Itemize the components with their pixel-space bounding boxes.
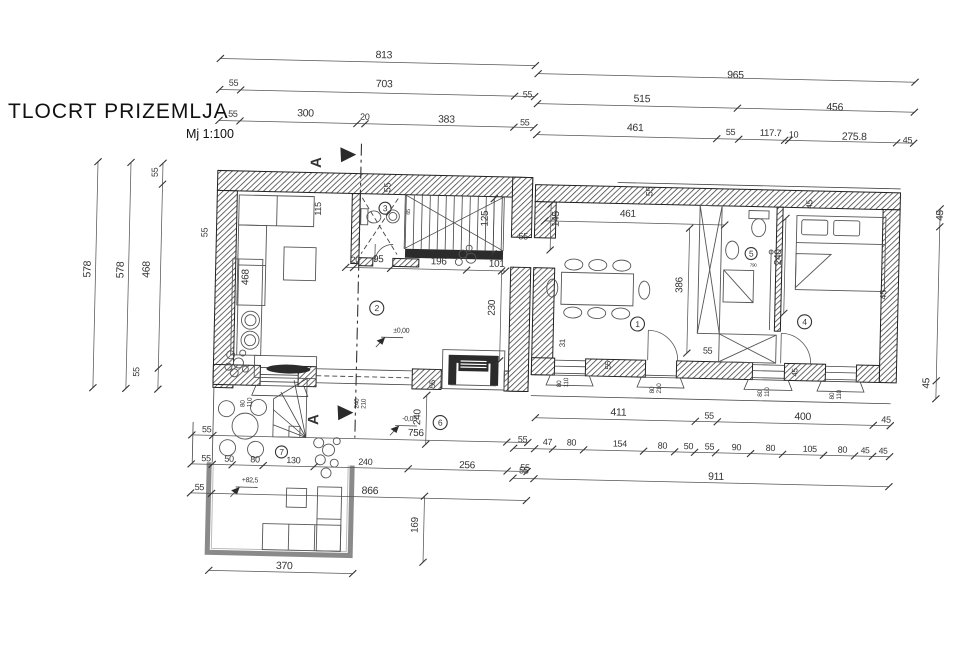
- dim-label: 90: [732, 442, 742, 452]
- dim-label: 117.7: [760, 128, 782, 139]
- bedroom-door-swing: [781, 333, 812, 364]
- dim-label: 55: [518, 231, 528, 241]
- terrace-table: [286, 488, 306, 507]
- dim-label: 813: [375, 49, 392, 61]
- dim-label: 756: [408, 428, 425, 439]
- stair-riser: [493, 197, 494, 251]
- dim-label: 154: [613, 438, 628, 448]
- dim-label: 55: [520, 117, 530, 127]
- dim-label: 578: [114, 261, 126, 278]
- entry-door-swing: [648, 330, 679, 361]
- stair-riser: [469, 196, 470, 250]
- wall-new-masonry: [697, 205, 780, 363]
- dim-label: 256: [459, 460, 476, 471]
- dim-label: 55: [428, 379, 437, 388]
- dim-line: [126, 162, 131, 388]
- dim-label: 515: [633, 93, 650, 105]
- dim-label: 45: [903, 135, 913, 145]
- dim-label: 55: [131, 367, 141, 377]
- dim-label: 101: [489, 259, 506, 270]
- living-room-furniture: [230, 195, 320, 379]
- dim-label: 80: [250, 454, 260, 464]
- dim-label: 383: [438, 113, 455, 125]
- dim-label: 461: [627, 122, 644, 134]
- dim-label: 31: [558, 338, 567, 347]
- dim-label: 45: [804, 199, 814, 209]
- dim-label: 55: [603, 360, 612, 369]
- drawing-scale: Mj 1:100: [186, 127, 234, 141]
- dim-label: 55: [703, 345, 713, 355]
- dim-label: 45: [881, 415, 891, 425]
- dim-label: 55: [201, 453, 211, 463]
- dim-label: 45: [790, 367, 799, 376]
- dim-label: 145: [551, 210, 562, 227]
- dim-label: 55: [523, 89, 533, 99]
- dim-label: 411: [610, 406, 627, 418]
- dim-line: [784, 218, 786, 313]
- dim-label: 468: [240, 268, 251, 285]
- dim-label: 196: [431, 256, 448, 267]
- dim-line: [423, 496, 424, 562]
- dim-label: 50: [224, 454, 234, 464]
- window-size-label: 210: [656, 383, 663, 394]
- dim-line: [545, 221, 725, 225]
- dim-label: 80: [838, 445, 848, 455]
- dim-line: [687, 228, 690, 353]
- wall-partition: [774, 207, 783, 331]
- dim-label: 866: [361, 485, 378, 497]
- dim-label: 55: [199, 227, 209, 237]
- dim-label: 55: [195, 482, 205, 492]
- dim-label: 55: [202, 424, 212, 434]
- dim-label: 400: [794, 411, 811, 423]
- dim-label: 703: [376, 78, 393, 90]
- dim-line: [93, 162, 98, 388]
- section-arrow-bottom: [337, 405, 353, 420]
- dim-line: [500, 271, 502, 361]
- dim-label: 456: [826, 101, 843, 113]
- wall: [511, 177, 532, 237]
- dim-label: 240: [358, 457, 373, 467]
- dim-label: 468: [140, 261, 152, 278]
- dim-label: 55: [705, 442, 715, 452]
- room-number: 6: [438, 417, 443, 427]
- dim-label: 45: [921, 377, 932, 389]
- dim-line: [191, 493, 527, 501]
- wall-partition: [393, 258, 419, 267]
- dim-line: [514, 448, 890, 457]
- window-size-label: 210: [360, 398, 367, 409]
- room-number: 2: [374, 303, 379, 313]
- drawing-sheet: TLOCRT PRIZEMLJA Mj 1:100: [0, 0, 960, 663]
- plant: [313, 437, 340, 478]
- dim-label: 965: [727, 69, 744, 81]
- title-block: TLOCRT PRIZEMLJA Mj 1:100: [8, 100, 234, 141]
- window-size-label: 110: [836, 389, 843, 399]
- dim-label: 10: [789, 129, 799, 139]
- dim-label: 55: [382, 182, 392, 192]
- wall: [508, 267, 531, 391]
- window-size-label: 110: [246, 397, 253, 407]
- stair-riser: [421, 195, 422, 249]
- stair-riser: [477, 196, 478, 250]
- stair-riser: [437, 195, 438, 249]
- dim-label: 47: [543, 437, 553, 447]
- dim-label: 50: [684, 441, 694, 451]
- wall: [585, 359, 645, 377]
- dim-line: [219, 120, 534, 127]
- dim-label: 95: [373, 254, 385, 265]
- dim-line: [537, 104, 914, 113]
- dim-label: 300: [297, 107, 314, 119]
- dim-label: 55: [644, 186, 654, 196]
- dim-label: 790: [750, 263, 758, 268]
- drawing-title: TLOCRT PRIZEMLJA: [8, 100, 234, 124]
- dim-label: 45: [879, 445, 889, 455]
- stair-riser: [429, 195, 430, 249]
- room-number: 1: [635, 319, 640, 329]
- wall: [213, 190, 237, 387]
- dim-line: [936, 209, 940, 399]
- dim-line: [513, 478, 889, 487]
- elevation-label: -0,05: [402, 416, 417, 423]
- dim-label: 240: [773, 249, 784, 266]
- wc-fixtures: [360, 198, 400, 263]
- dim-line: [426, 395, 427, 444]
- wall: [531, 358, 554, 376]
- dim-label: 20: [351, 254, 361, 264]
- section-arrow-top: [340, 147, 356, 162]
- terrace: [190, 376, 891, 568]
- dim-label: 370: [276, 560, 293, 572]
- stair-riser: [413, 195, 414, 249]
- room-number: 5: [749, 249, 754, 259]
- dim-label: 45: [878, 290, 888, 300]
- room-number: 4: [802, 317, 807, 327]
- dim-label: 461: [620, 209, 637, 220]
- room-number: 3: [383, 203, 388, 213]
- dim-label: 130: [286, 455, 301, 465]
- dim-label: 45: [935, 209, 946, 221]
- dim-label: 80: [567, 437, 577, 447]
- dim-label: 55: [704, 411, 714, 421]
- dim-label: 65: [406, 209, 412, 215]
- dim-label: 275.8: [842, 131, 868, 144]
- elevation-label: +82,5: [242, 477, 259, 484]
- dim-label: 911: [708, 471, 725, 483]
- dim-label: 80: [658, 440, 668, 450]
- dim-label: 55: [726, 127, 736, 137]
- dim-label: 55: [150, 167, 160, 177]
- dim-label: 578: [81, 260, 93, 277]
- dim-label: 55: [518, 434, 528, 444]
- stair-riser: [501, 197, 502, 251]
- dim-label: 115: [313, 202, 323, 216]
- dim-label: 230: [487, 299, 498, 316]
- stair-riser: [461, 196, 462, 250]
- elevation-marker: [230, 334, 419, 501]
- window-size-label: 110: [563, 377, 570, 387]
- dim-label: 45: [861, 445, 871, 455]
- section-letter: A: [308, 157, 325, 168]
- dim-label: 80: [766, 443, 776, 453]
- dim-label: 169: [410, 516, 421, 533]
- dining-set: [546, 258, 650, 319]
- wall-partition: [359, 258, 373, 266]
- room-number: 7: [279, 447, 284, 457]
- stair-riser: [445, 196, 446, 250]
- dim-line: [158, 163, 163, 389]
- window-size-label: 110: [764, 387, 771, 397]
- dim-label: 386: [674, 276, 685, 293]
- elevation-label: ±0,00: [393, 327, 410, 334]
- dim-line: [346, 267, 506, 271]
- bed: [795, 216, 886, 292]
- wall: [856, 365, 879, 383]
- dim-label: 55: [229, 78, 239, 88]
- wall: [676, 361, 752, 380]
- wall: [217, 170, 532, 197]
- section-letter: A: [305, 414, 322, 425]
- dim-label: 105: [803, 444, 818, 454]
- dim-line: [220, 89, 535, 96]
